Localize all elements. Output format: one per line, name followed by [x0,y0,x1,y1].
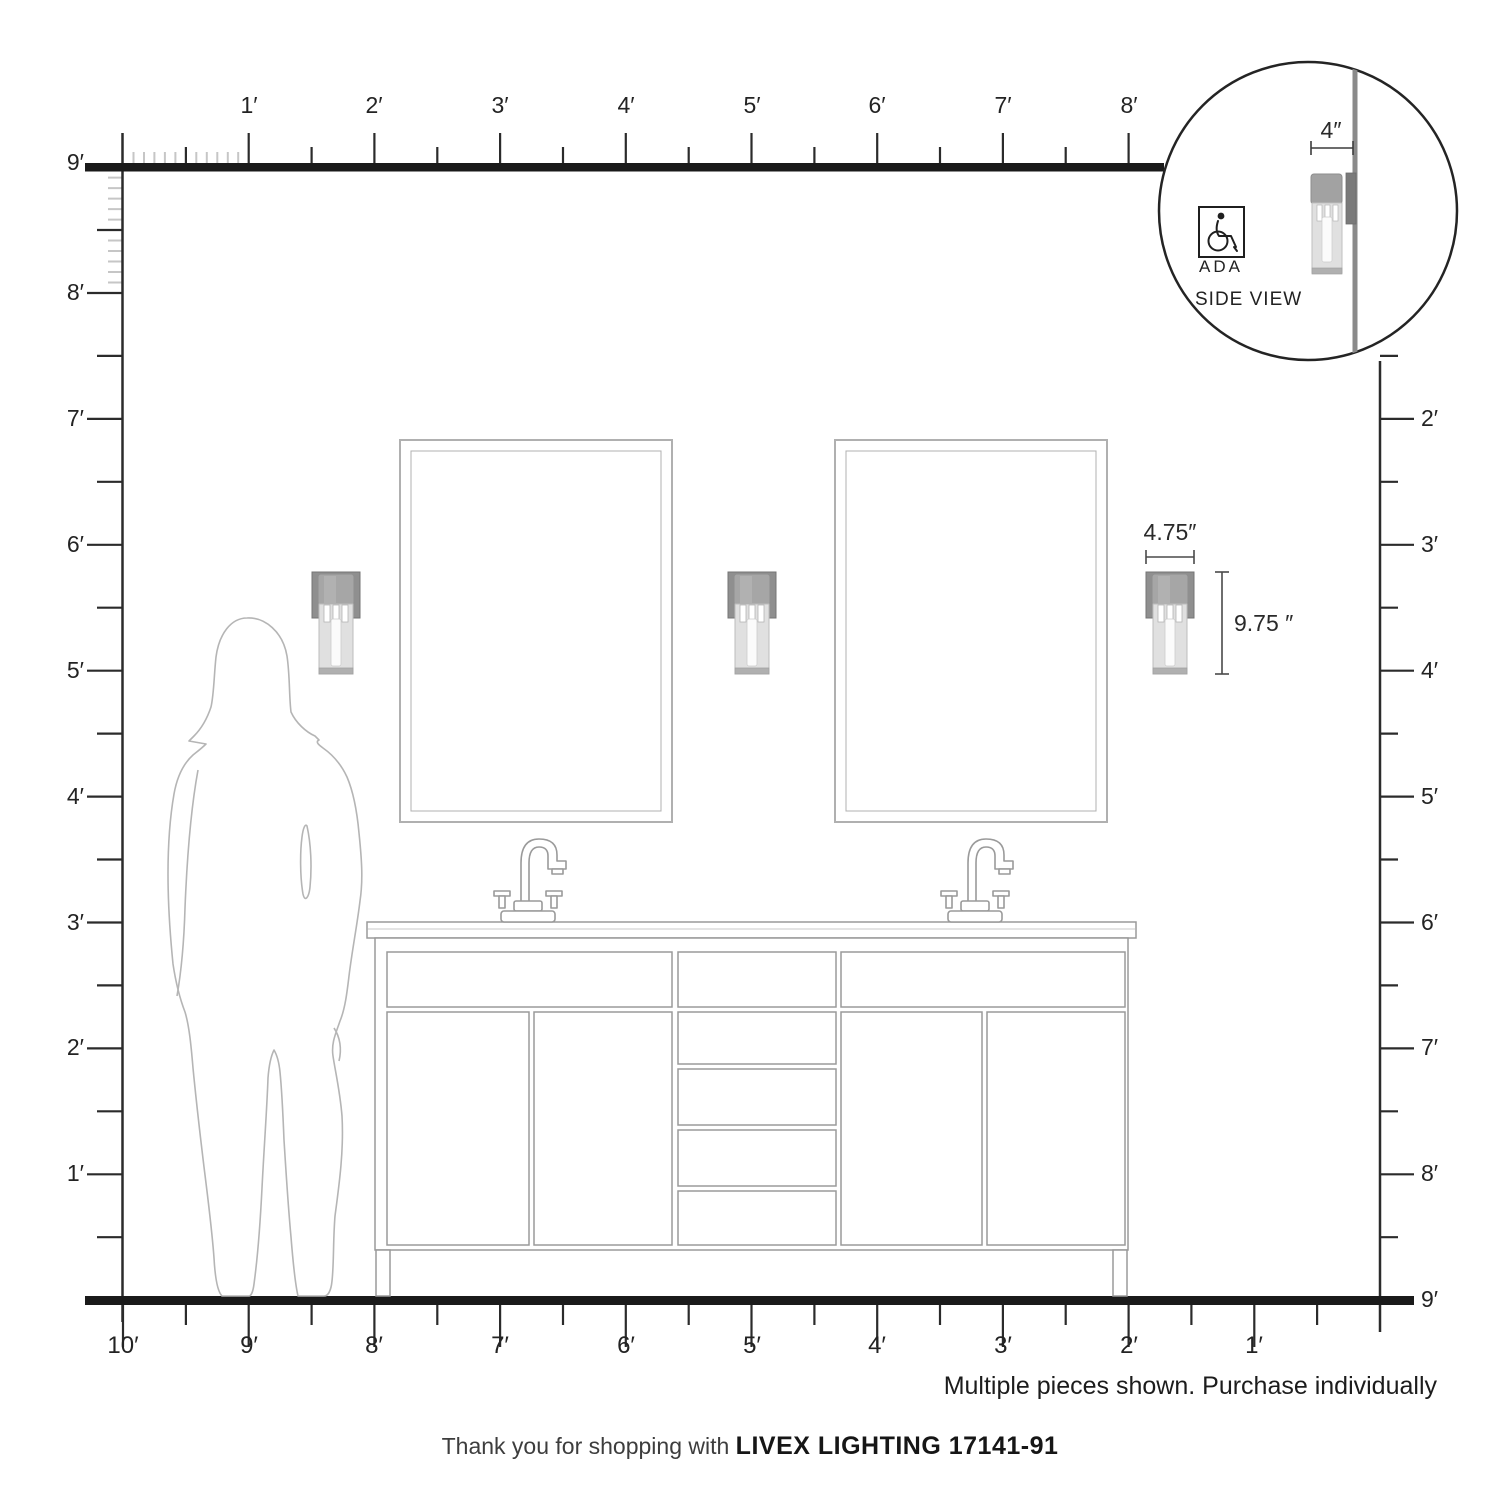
bottom-ruler-label: 9′ [240,1332,258,1359]
leg-left [376,1250,390,1296]
ada-wheelchair-icon [1199,207,1244,257]
right-ruler-label: 6′ [1421,909,1438,936]
false-drawer-right [841,952,1125,1007]
bottom-ruler-label: 7′ [491,1332,509,1359]
vanity-cabinet [367,922,1136,1296]
ada-label: ADA [1199,257,1243,277]
right-ruler-label: 5′ [1421,783,1438,810]
mirror-right [835,440,1107,822]
fixture-height-dimension-label: 9.75 ″ [1234,610,1293,637]
faucet-left [494,839,566,922]
drawer-1 [678,1012,836,1064]
drawer-4 [678,1191,836,1245]
fixture-depth-dimension-label: 4″ [1321,117,1342,144]
door-left-2 [534,1012,672,1245]
top-ruler-label: 5′ [743,92,760,119]
right-ruler-major-ticks [1380,419,1414,1174]
sconce-left [312,572,360,674]
left-ruler-label: 1′ [36,1160,84,1187]
door-right-2 [987,1012,1125,1245]
right-ruler-label: 3′ [1421,531,1438,558]
female-figure-silhouette [168,618,362,1296]
right-ruler-label: 7′ [1421,1034,1438,1061]
left-ruler-label: 3′ [36,909,84,936]
door-right-1 [841,1012,982,1245]
right-ruler-label: 2′ [1421,405,1438,432]
bottom-ruler-label: 2′ [1120,1332,1138,1359]
left-ruler-label: 2′ [36,1034,84,1061]
drawer-3 [678,1130,836,1186]
top-ruler-label: 2′ [365,92,382,119]
right-ruler-label: 8′ [1421,1160,1438,1187]
purchase-note: Multiple pieces shown. Purchase individu… [944,1372,1437,1401]
ceiling-bar [85,163,1164,172]
right-ruler-label: 9′ [1421,1286,1438,1313]
dimension-diagram-page: 1′ 2′ 3′ 4′ 5′ 6′ 7′ 8′ 9′ 8′ 7′ 6′ 5′ 4… [0,0,1500,1500]
side-view-label: SIDE VIEW [1195,289,1302,311]
bottom-ruler-label: 5′ [743,1332,761,1359]
left-ruler-half-ticks [97,230,122,1237]
bottom-ruler-label: 3′ [994,1332,1012,1359]
top-ruler-label: 3′ [491,92,508,119]
bottom-ruler-label: 6′ [617,1332,635,1359]
top-ruler-label: 4′ [617,92,634,119]
width-dimension-line [1146,550,1194,564]
floor-bar [85,1296,1414,1305]
diagram-canvas [0,0,1500,1500]
door-left-1 [387,1012,529,1245]
footer-thanks-text: Thank you for shopping with [442,1433,730,1459]
bottom-ruler-label: 4′ [868,1332,886,1359]
left-ruler-label: 8′ [36,279,84,306]
fixture-width-dimension-label: 4.75″ [1144,519,1197,546]
brand-product-text: LIVEX LIGHTING 17141-91 [736,1432,1059,1460]
false-drawer-center [678,952,836,1007]
false-drawer-left [387,952,672,1007]
faucet-right [941,839,1013,922]
left-ruler-label: 7′ [36,405,84,432]
height-dimension-line [1215,572,1229,674]
bottom-ruler-label: 8′ [365,1332,383,1359]
top-ruler-label: 7′ [994,92,1011,119]
bottom-ruler-label: 1′ [1245,1332,1263,1359]
leg-right [1113,1250,1127,1296]
left-ruler-label: 9′ [36,149,84,176]
footer-text: Thank you for shopping with LIVEX LIGHTI… [0,1432,1500,1461]
top-ruler-label: 1′ [240,92,257,119]
left-ruler-label: 4′ [36,783,84,810]
left-ruler-label: 6′ [36,531,84,558]
drawer-2 [678,1069,836,1125]
right-ruler-label: 4′ [1421,657,1438,684]
countertop [367,922,1136,938]
top-ruler-label: 6′ [868,92,885,119]
mirror-left [400,440,672,822]
sconce-middle [728,572,776,674]
sconce-right [1146,572,1194,674]
left-ruler-label: 5′ [36,657,84,684]
bottom-ruler-label: 10′ [107,1332,138,1359]
top-ruler-label: 8′ [1120,92,1137,119]
